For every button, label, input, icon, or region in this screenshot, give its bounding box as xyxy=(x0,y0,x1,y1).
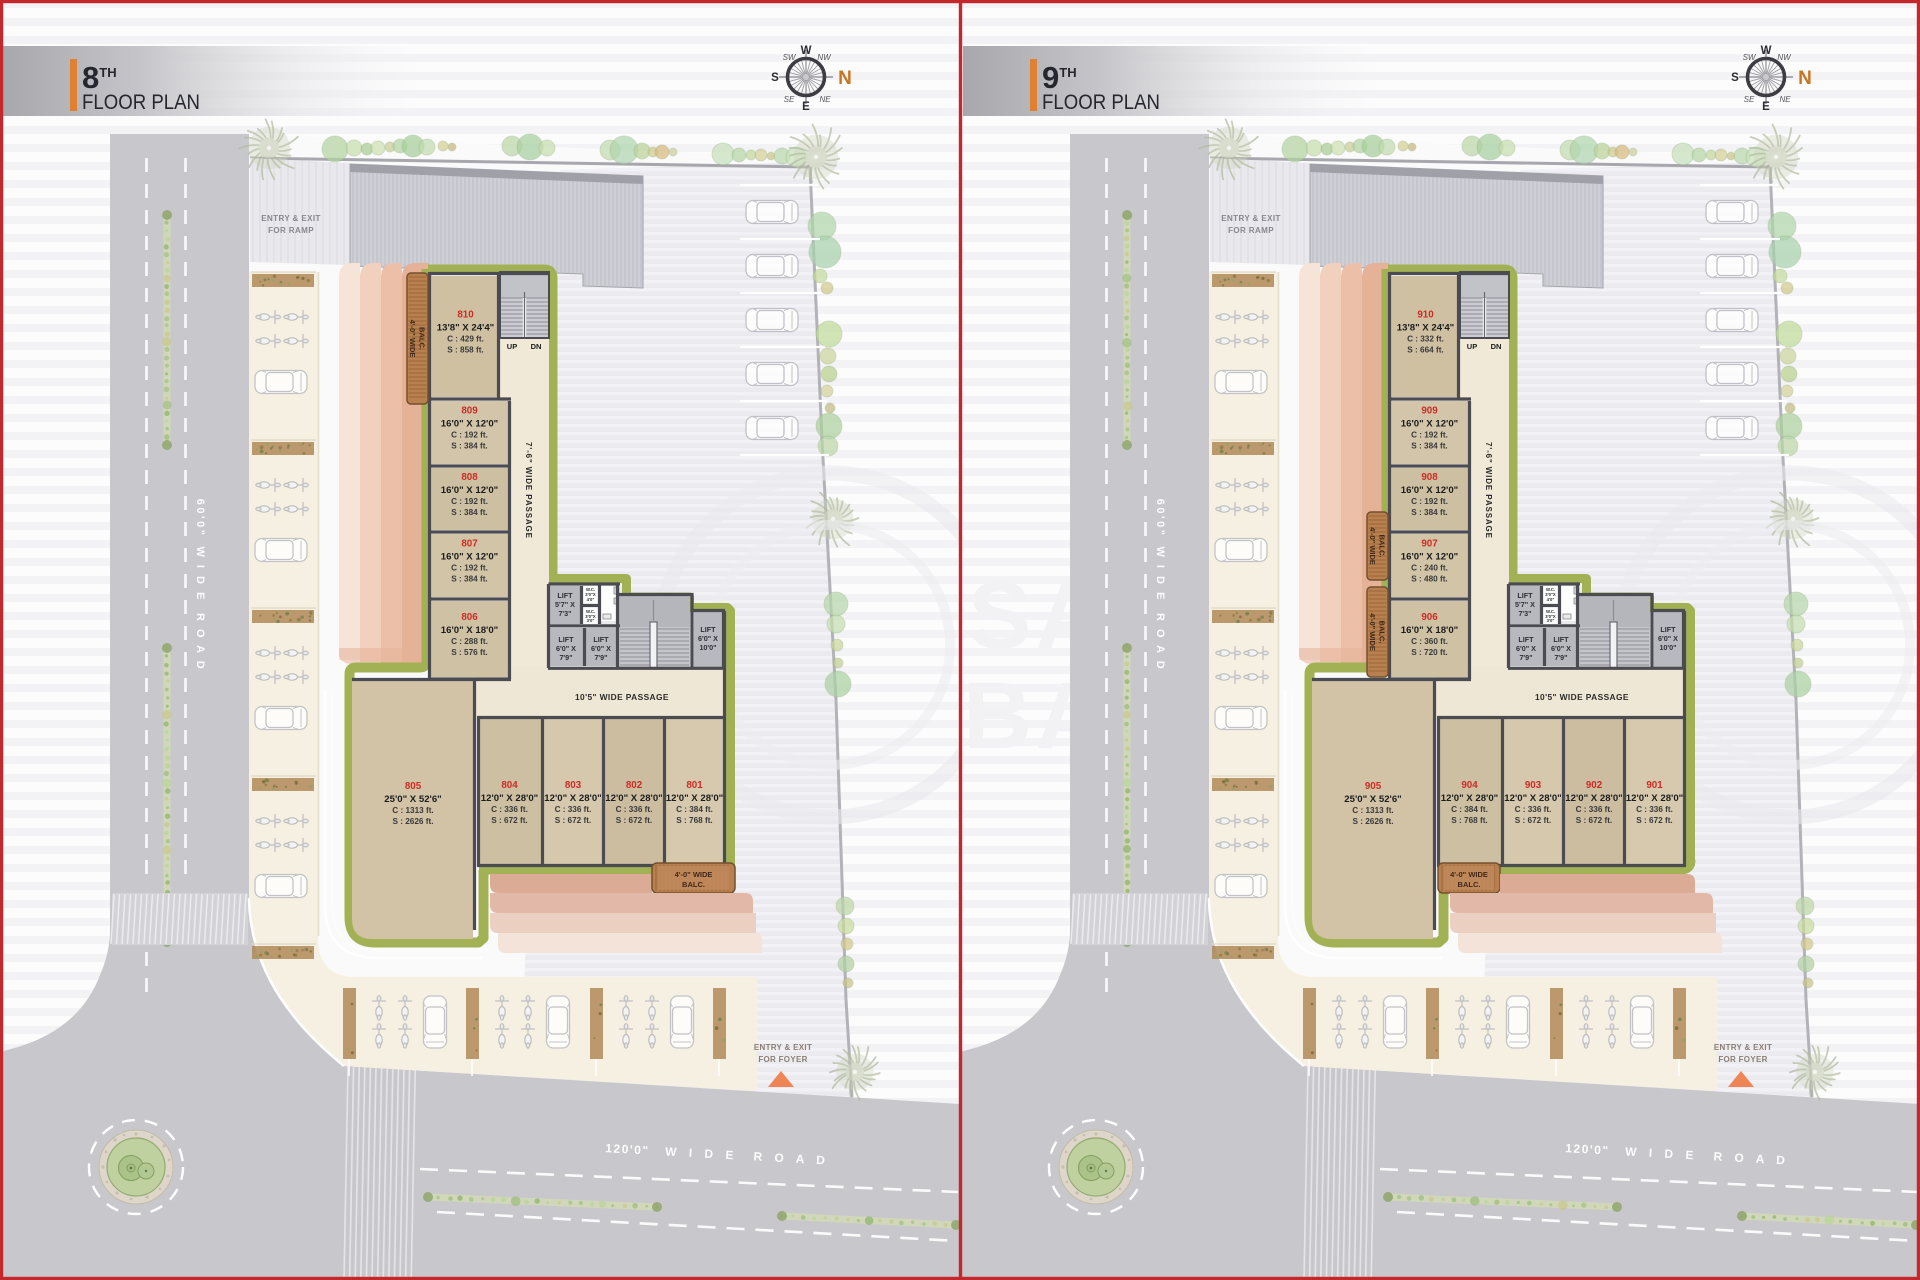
svg-text:LIFT: LIFT xyxy=(700,625,716,634)
svg-text:803: 803 xyxy=(565,780,582,791)
svg-text:C : 192 ft.: C : 192 ft. xyxy=(451,497,488,506)
svg-text:DN: DN xyxy=(1491,342,1502,351)
svg-text:801: 801 xyxy=(686,780,703,791)
svg-text:UP: UP xyxy=(1467,342,1477,351)
svg-text:S : 2626 ft.: S : 2626 ft. xyxy=(1353,817,1394,826)
svg-text:7'9": 7'9" xyxy=(1519,653,1532,662)
svg-text:909: 909 xyxy=(1421,406,1438,417)
svg-text:DN: DN xyxy=(531,342,542,351)
svg-text:W: W xyxy=(1761,45,1772,57)
svg-text:N: N xyxy=(838,68,852,89)
svg-text:C : 336 ft.: C : 336 ft. xyxy=(491,805,528,814)
svg-text:LIFT: LIFT xyxy=(557,591,573,600)
svg-text:S : 768 ft.: S : 768 ft. xyxy=(676,816,712,825)
svg-text:W: W xyxy=(801,45,812,57)
svg-text:C : 288 ft.: C : 288 ft. xyxy=(451,637,488,646)
svg-text:UP: UP xyxy=(507,342,517,351)
svg-text:LIFT: LIFT xyxy=(1553,635,1569,644)
svg-text:NW: NW xyxy=(817,53,832,62)
svg-text:12'0" X 28'0": 12'0" X 28'0" xyxy=(544,793,601,804)
svg-text:S : 664 ft.: S : 664 ft. xyxy=(1407,346,1443,355)
svg-text:BALC.: BALC. xyxy=(1378,535,1387,558)
svg-text:NE: NE xyxy=(1779,95,1791,104)
svg-text:BALC.: BALC. xyxy=(418,327,427,350)
svg-text:ENTRY & EXIT: ENTRY & EXIT xyxy=(1714,1043,1772,1052)
svg-text:60'0" W I D E R O A D: 60'0" W I D E R O A D xyxy=(1154,499,1166,671)
svg-text:FOR FOYER: FOR FOYER xyxy=(758,1055,807,1064)
svg-text:10'5" WIDE PASSAGE: 10'5" WIDE PASSAGE xyxy=(575,692,669,702)
svg-text:S : 672 ft.: S : 672 ft. xyxy=(1636,816,1672,825)
svg-text:C : 336 ft.: C : 336 ft. xyxy=(1515,805,1552,814)
svg-text:BALC.: BALC. xyxy=(682,880,705,889)
svg-text:C : 384 ft.: C : 384 ft. xyxy=(1451,805,1488,814)
svg-text:SE: SE xyxy=(1744,95,1755,104)
svg-text:4'-0" WIDE: 4'-0" WIDE xyxy=(408,320,417,358)
svg-text:S : 480 ft.: S : 480 ft. xyxy=(1411,575,1447,584)
svg-text:LIFT: LIFT xyxy=(1517,591,1533,600)
svg-text:FLOOR PLAN: FLOOR PLAN xyxy=(1042,91,1160,114)
svg-text:C : 429 ft.: C : 429 ft. xyxy=(447,335,484,344)
svg-text:808: 808 xyxy=(461,472,478,483)
svg-text:4'0": 4'0" xyxy=(587,597,595,602)
svg-text:5'7" X: 5'7" X xyxy=(1515,600,1535,609)
svg-text:C : 1313 ft.: C : 1313 ft. xyxy=(392,806,433,815)
svg-text:C : 192 ft.: C : 192 ft. xyxy=(451,431,488,440)
svg-text:C : 332 ft.: C : 332 ft. xyxy=(1407,335,1444,344)
svg-text:FOR RAMP: FOR RAMP xyxy=(1228,226,1274,235)
svg-text:S : 576 ft.: S : 576 ft. xyxy=(451,648,487,657)
svg-text:7'-6" WIDE PASSAGE: 7'-6" WIDE PASSAGE xyxy=(524,442,533,539)
svg-text:C : 336 ft.: C : 336 ft. xyxy=(555,805,592,814)
svg-text:E: E xyxy=(802,101,810,113)
svg-text:809: 809 xyxy=(461,406,478,417)
svg-text:5'7" X: 5'7" X xyxy=(555,600,575,609)
svg-text:10'0": 10'0" xyxy=(1659,643,1676,652)
svg-text:7'3": 7'3" xyxy=(558,609,571,618)
svg-text:7'9": 7'9" xyxy=(559,653,572,662)
svg-text:4'-0" WIDE: 4'-0" WIDE xyxy=(1368,613,1377,651)
svg-text:6'0" X: 6'0" X xyxy=(698,634,718,643)
svg-text:C : 192 ft.: C : 192 ft. xyxy=(1411,497,1448,506)
svg-text:905: 905 xyxy=(1365,781,1382,792)
svg-text:FLOOR PLAN: FLOOR PLAN xyxy=(82,91,200,114)
svg-text:ENTRY & EXIT: ENTRY & EXIT xyxy=(1221,214,1280,223)
svg-text:6'0" X: 6'0" X xyxy=(556,644,576,653)
svg-text:12'0" X 28'0": 12'0" X 28'0" xyxy=(1504,793,1561,804)
svg-text:12'0" X 28'0": 12'0" X 28'0" xyxy=(1626,793,1683,804)
svg-text:904: 904 xyxy=(1461,780,1478,791)
svg-text:S : 2626 ft.: S : 2626 ft. xyxy=(393,817,434,826)
svg-text:ENTRY & EXIT: ENTRY & EXIT xyxy=(754,1043,812,1052)
svg-text:16'0" X 12'0": 16'0" X 12'0" xyxy=(1401,485,1458,496)
svg-text:C : 336 ft.: C : 336 ft. xyxy=(1576,805,1613,814)
svg-text:804: 804 xyxy=(501,780,518,791)
svg-text:25'0" X 52'6": 25'0" X 52'6" xyxy=(1344,794,1401,805)
svg-text:902: 902 xyxy=(1586,780,1603,791)
svg-text:903: 903 xyxy=(1525,780,1542,791)
svg-text:13'8" X 24'4": 13'8" X 24'4" xyxy=(1397,323,1454,334)
svg-text:S : 384 ft.: S : 384 ft. xyxy=(1411,442,1447,451)
svg-text:16'0" X 12'0": 16'0" X 12'0" xyxy=(1401,552,1458,563)
svg-text:4'-0" WIDE: 4'-0" WIDE xyxy=(675,870,713,879)
svg-text:6'0" X: 6'0" X xyxy=(1658,634,1678,643)
svg-text:S : 768 ft.: S : 768 ft. xyxy=(1451,816,1487,825)
svg-text:907: 907 xyxy=(1421,539,1438,550)
svg-text:NE: NE xyxy=(819,95,831,104)
svg-text:C : 360 ft.: C : 360 ft. xyxy=(1411,637,1448,646)
svg-text:ENTRY & EXIT: ENTRY & EXIT xyxy=(261,214,320,223)
svg-text:N: N xyxy=(1798,68,1812,89)
svg-text:7'9": 7'9" xyxy=(594,653,607,662)
svg-text:4'-0" WIDE: 4'-0" WIDE xyxy=(1450,870,1488,879)
svg-text:60'0" W I D E R O A D: 60'0" W I D E R O A D xyxy=(194,499,206,671)
svg-text:BALC.: BALC. xyxy=(1378,621,1387,644)
svg-text:6'0" X: 6'0" X xyxy=(1551,644,1571,653)
svg-text:16'0" X 12'0": 16'0" X 12'0" xyxy=(441,419,498,430)
svg-text:E: E xyxy=(1762,101,1770,113)
svg-text:805: 805 xyxy=(405,781,422,792)
svg-text:16'0" X 18'0": 16'0" X 18'0" xyxy=(441,625,498,636)
svg-text:S : 672 ft.: S : 672 ft. xyxy=(1576,816,1612,825)
svg-text:LIFT: LIFT xyxy=(558,635,574,644)
svg-text:12'0" X 28'0": 12'0" X 28'0" xyxy=(666,793,723,804)
svg-text:S : 384 ft.: S : 384 ft. xyxy=(451,442,487,451)
svg-text:806: 806 xyxy=(461,612,478,623)
svg-text:901: 901 xyxy=(1646,780,1663,791)
svg-text:3'0": 3'0" xyxy=(1547,618,1555,623)
svg-text:FOR FOYER: FOR FOYER xyxy=(1718,1055,1767,1064)
svg-text:6'0" X: 6'0" X xyxy=(591,644,611,653)
svg-text:3'0": 3'0" xyxy=(587,618,595,623)
svg-text:807: 807 xyxy=(461,539,478,550)
svg-text:LIFT: LIFT xyxy=(593,635,609,644)
svg-text:16'0" X 18'0": 16'0" X 18'0" xyxy=(1401,625,1458,636)
svg-text:16'0" X 12'0": 16'0" X 12'0" xyxy=(441,552,498,563)
svg-text:16'0" X 12'0": 16'0" X 12'0" xyxy=(441,485,498,496)
svg-text:C : 192 ft.: C : 192 ft. xyxy=(451,564,488,573)
svg-text:10'5" WIDE PASSAGE: 10'5" WIDE PASSAGE xyxy=(1535,692,1629,702)
svg-text:C : 336 ft.: C : 336 ft. xyxy=(616,805,653,814)
svg-text:NW: NW xyxy=(1777,53,1792,62)
svg-text:S : 858 ft.: S : 858 ft. xyxy=(447,346,483,355)
svg-text:S : 672 ft.: S : 672 ft. xyxy=(491,816,527,825)
svg-text:7'3": 7'3" xyxy=(1518,609,1531,618)
svg-text:7'9": 7'9" xyxy=(1554,653,1567,662)
svg-text:C : 336 ft.: C : 336 ft. xyxy=(1636,805,1673,814)
svg-text:S : 672 ft.: S : 672 ft. xyxy=(616,816,652,825)
svg-text:FOR RAMP: FOR RAMP xyxy=(268,226,314,235)
svg-text:4'0": 4'0" xyxy=(1547,597,1555,602)
svg-text:10'0": 10'0" xyxy=(699,643,716,652)
svg-text:7'-6" WIDE PASSAGE: 7'-6" WIDE PASSAGE xyxy=(1484,442,1493,539)
svg-text:SW: SW xyxy=(783,53,797,62)
svg-text:C : 1313 ft.: C : 1313 ft. xyxy=(1352,806,1393,815)
svg-text:LIFT: LIFT xyxy=(1518,635,1534,644)
svg-text:S: S xyxy=(771,72,779,84)
svg-text:C : 384 ft.: C : 384 ft. xyxy=(676,805,713,814)
svg-text:S : 672 ft.: S : 672 ft. xyxy=(555,816,591,825)
svg-text:4'-0" WIDE: 4'-0" WIDE xyxy=(1368,527,1377,565)
svg-text:25'0" X 52'6": 25'0" X 52'6" xyxy=(384,794,441,805)
svg-text:810: 810 xyxy=(457,310,474,321)
svg-text:906: 906 xyxy=(1421,612,1438,623)
svg-text:S : 720 ft.: S : 720 ft. xyxy=(1411,648,1447,657)
svg-text:910: 910 xyxy=(1417,310,1434,321)
svg-text:S : 672 ft.: S : 672 ft. xyxy=(1515,816,1551,825)
svg-text:908: 908 xyxy=(1421,472,1438,483)
svg-text:S: S xyxy=(1731,72,1739,84)
svg-text:13'8" X 24'4": 13'8" X 24'4" xyxy=(437,323,494,334)
svg-text:6'0" X: 6'0" X xyxy=(1516,644,1536,653)
svg-text:C : 192 ft.: C : 192 ft. xyxy=(1411,431,1448,440)
svg-text:12'0" X 28'0": 12'0" X 28'0" xyxy=(1441,793,1498,804)
svg-text:S : 384 ft.: S : 384 ft. xyxy=(451,575,487,584)
svg-text:802: 802 xyxy=(626,780,643,791)
svg-text:12'0" X 28'0": 12'0" X 28'0" xyxy=(605,793,662,804)
svg-text:S : 384 ft.: S : 384 ft. xyxy=(451,508,487,517)
svg-text:LIFT: LIFT xyxy=(1660,625,1676,634)
svg-text:12'0" X 28'0": 12'0" X 28'0" xyxy=(1565,793,1622,804)
svg-text:12'0" X 28'0": 12'0" X 28'0" xyxy=(481,793,538,804)
svg-text:C : 240 ft.: C : 240 ft. xyxy=(1411,564,1448,573)
svg-text:S : 384 ft.: S : 384 ft. xyxy=(1411,508,1447,517)
svg-text:BALC.: BALC. xyxy=(1458,880,1481,889)
svg-text:SW: SW xyxy=(1743,53,1757,62)
svg-text:16'0" X 12'0": 16'0" X 12'0" xyxy=(1401,419,1458,430)
svg-text:SE: SE xyxy=(784,95,795,104)
